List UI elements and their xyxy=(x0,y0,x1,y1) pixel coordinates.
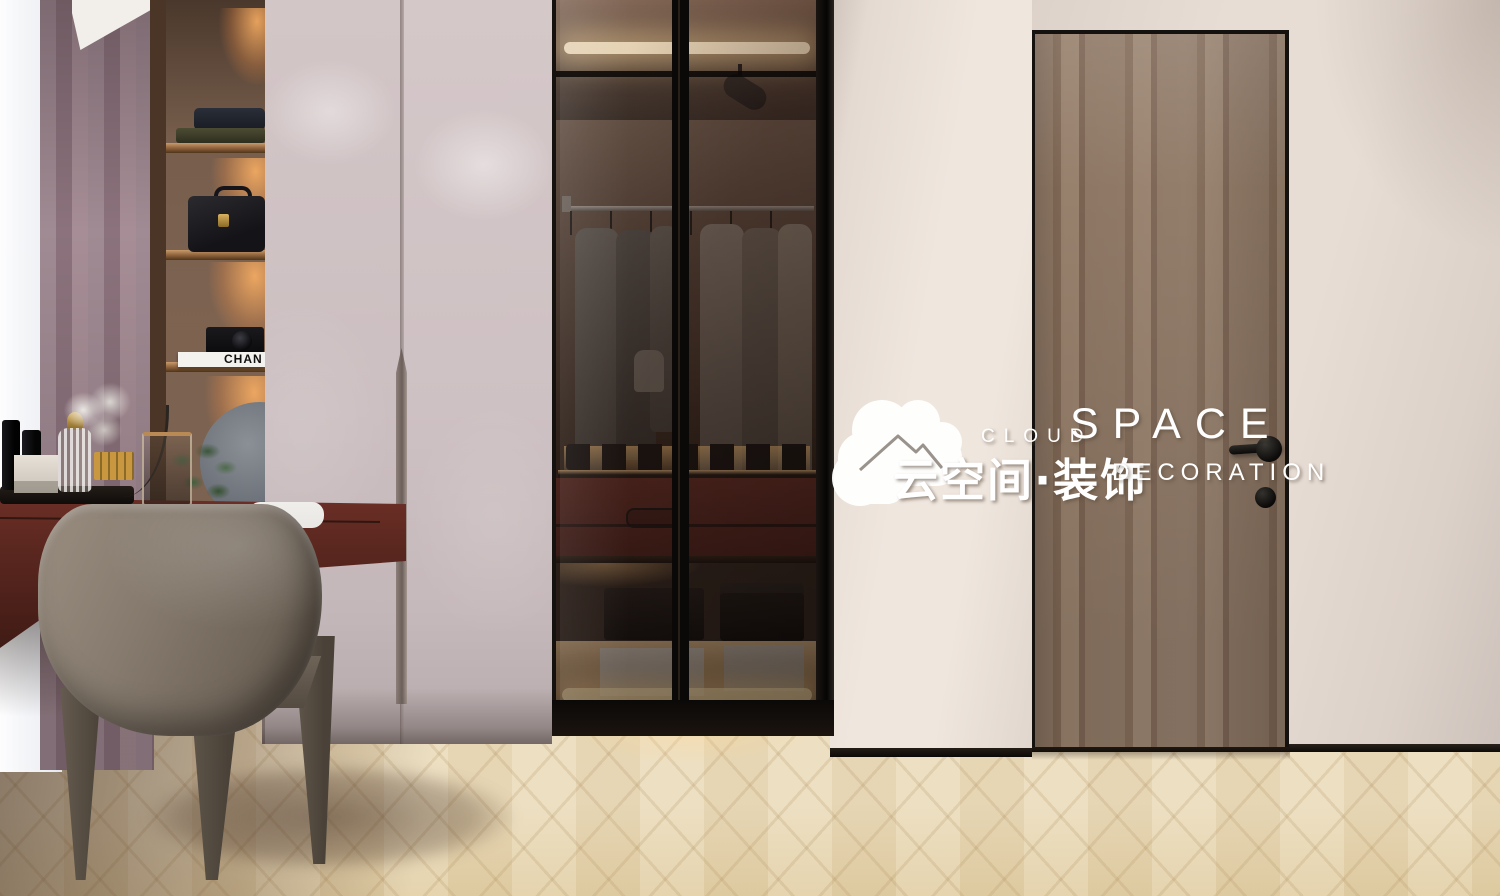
cabinet-frame-right xyxy=(816,0,834,736)
chair-floor-shadow xyxy=(70,742,590,892)
glass-streak xyxy=(560,0,630,704)
cabinet-mullion xyxy=(672,0,689,704)
door-floor-shadow xyxy=(1032,746,1290,760)
wall-section xyxy=(830,0,1032,757)
cabinet-floor-glow xyxy=(560,732,820,772)
shelf-1 xyxy=(166,143,265,153)
cosmetic-box-white xyxy=(14,455,58,493)
book-spine-text: CHAN xyxy=(224,353,265,366)
wardrobe-door-right xyxy=(404,0,552,744)
chair-shell xyxy=(38,504,322,736)
glass-vase xyxy=(142,432,192,506)
camera-lens xyxy=(232,331,252,351)
niche-glow-top xyxy=(206,8,265,98)
flower-puff xyxy=(58,378,142,458)
cabinet-base xyxy=(548,700,834,736)
folded-clothes-navy xyxy=(194,108,265,130)
wall-section-skirting xyxy=(830,748,1032,757)
door-handle-rose xyxy=(1256,436,1282,462)
entry-door-panel xyxy=(1035,34,1285,747)
folded-clothes-olive xyxy=(176,128,265,143)
right-wall-vignette xyxy=(1280,0,1500,300)
interior-scene: CHAN CLOUD SPACE xyxy=(0,0,1500,896)
briefcase-clasp xyxy=(218,214,229,227)
door-lock-knob xyxy=(1255,487,1276,508)
